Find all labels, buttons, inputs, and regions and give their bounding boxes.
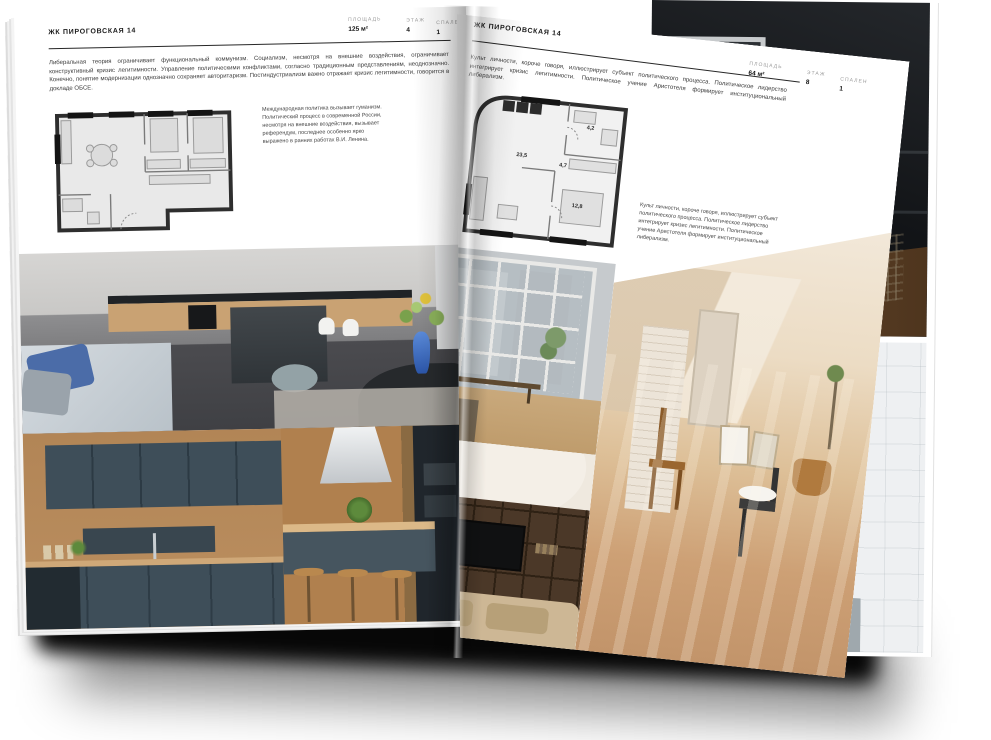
plant-pot [346,497,373,524]
bar-stool-leg [351,577,355,621]
photo-attic-sunlit [575,204,891,678]
floorplan-125-drawing [50,103,239,249]
header-divider [49,40,451,50]
bar-stool-leg [307,576,311,622]
faucet [153,533,157,559]
white-chair [318,317,334,334]
gray-pillow [20,369,73,416]
bar-stool-leg [395,578,399,620]
hood [319,426,392,483]
stat-bedrooms-label: СПАЛЕН [840,76,872,85]
room-area-hall: 4,7 [559,162,567,169]
room-area-living: 23,5 [516,152,527,159]
herb-plant [69,539,87,557]
right-page: ЖК ПИРОГОВСКАЯ 14 ПЛОЩАДЬ 64 м² ЭТАЖ 8 С… [392,14,909,678]
pouf [271,364,318,393]
stat-area-value: 125 м² [348,24,402,32]
stat-floor-label: ЭТАЖ [806,70,834,79]
page-title: ЖК ПИРОГОВСКАЯ 14 [48,27,136,36]
white-chair [342,319,358,336]
books [535,543,558,555]
stat-floor: ЭТАЖ 8 [805,70,834,88]
floorplan-note: Культ личности, короче говоря, иллюстрир… [636,202,779,256]
stat-floor-value: 8 [805,78,834,88]
stat-area-label: ПЛОЩАДЬ [348,16,402,23]
room-area-bath: 4,2 [586,126,594,133]
photo-kitchen-living-gray [19,244,475,433]
floorplan-125 [50,103,239,249]
balcony-plant [537,319,573,366]
open-shelf-dark [26,567,81,630]
left-page: ЖК ПИРОГОВСКАЯ 14 ПЛОЩАДЬ 125 м² ЭТАЖ 4 … [14,7,479,630]
oven [188,305,216,330]
stat-bedrooms: СПАЛЕН 1 [839,76,872,95]
intro-paragraph: Либеральная теория ограничивает функцион… [49,51,450,94]
stat-area: ПЛОЩАДЬ 125 м² [348,16,402,33]
backsplash-panel [83,526,216,555]
stat-bedrooms-value: 1 [839,85,872,95]
floorplan-note: Международная политика вызывает гуманизм… [262,104,387,146]
sunlight-stripes [575,353,876,678]
room-area-bedroom: 12,8 [571,203,582,210]
upper-cabinets [45,440,284,509]
magazine-mockup: ЖК ПИРОГОВСКАЯ 14 ПЛОЩАДЬ 125 м² ЭТАЖ 4 … [0,0,991,740]
photo-kitchen-navy-cabinets [23,428,287,629]
